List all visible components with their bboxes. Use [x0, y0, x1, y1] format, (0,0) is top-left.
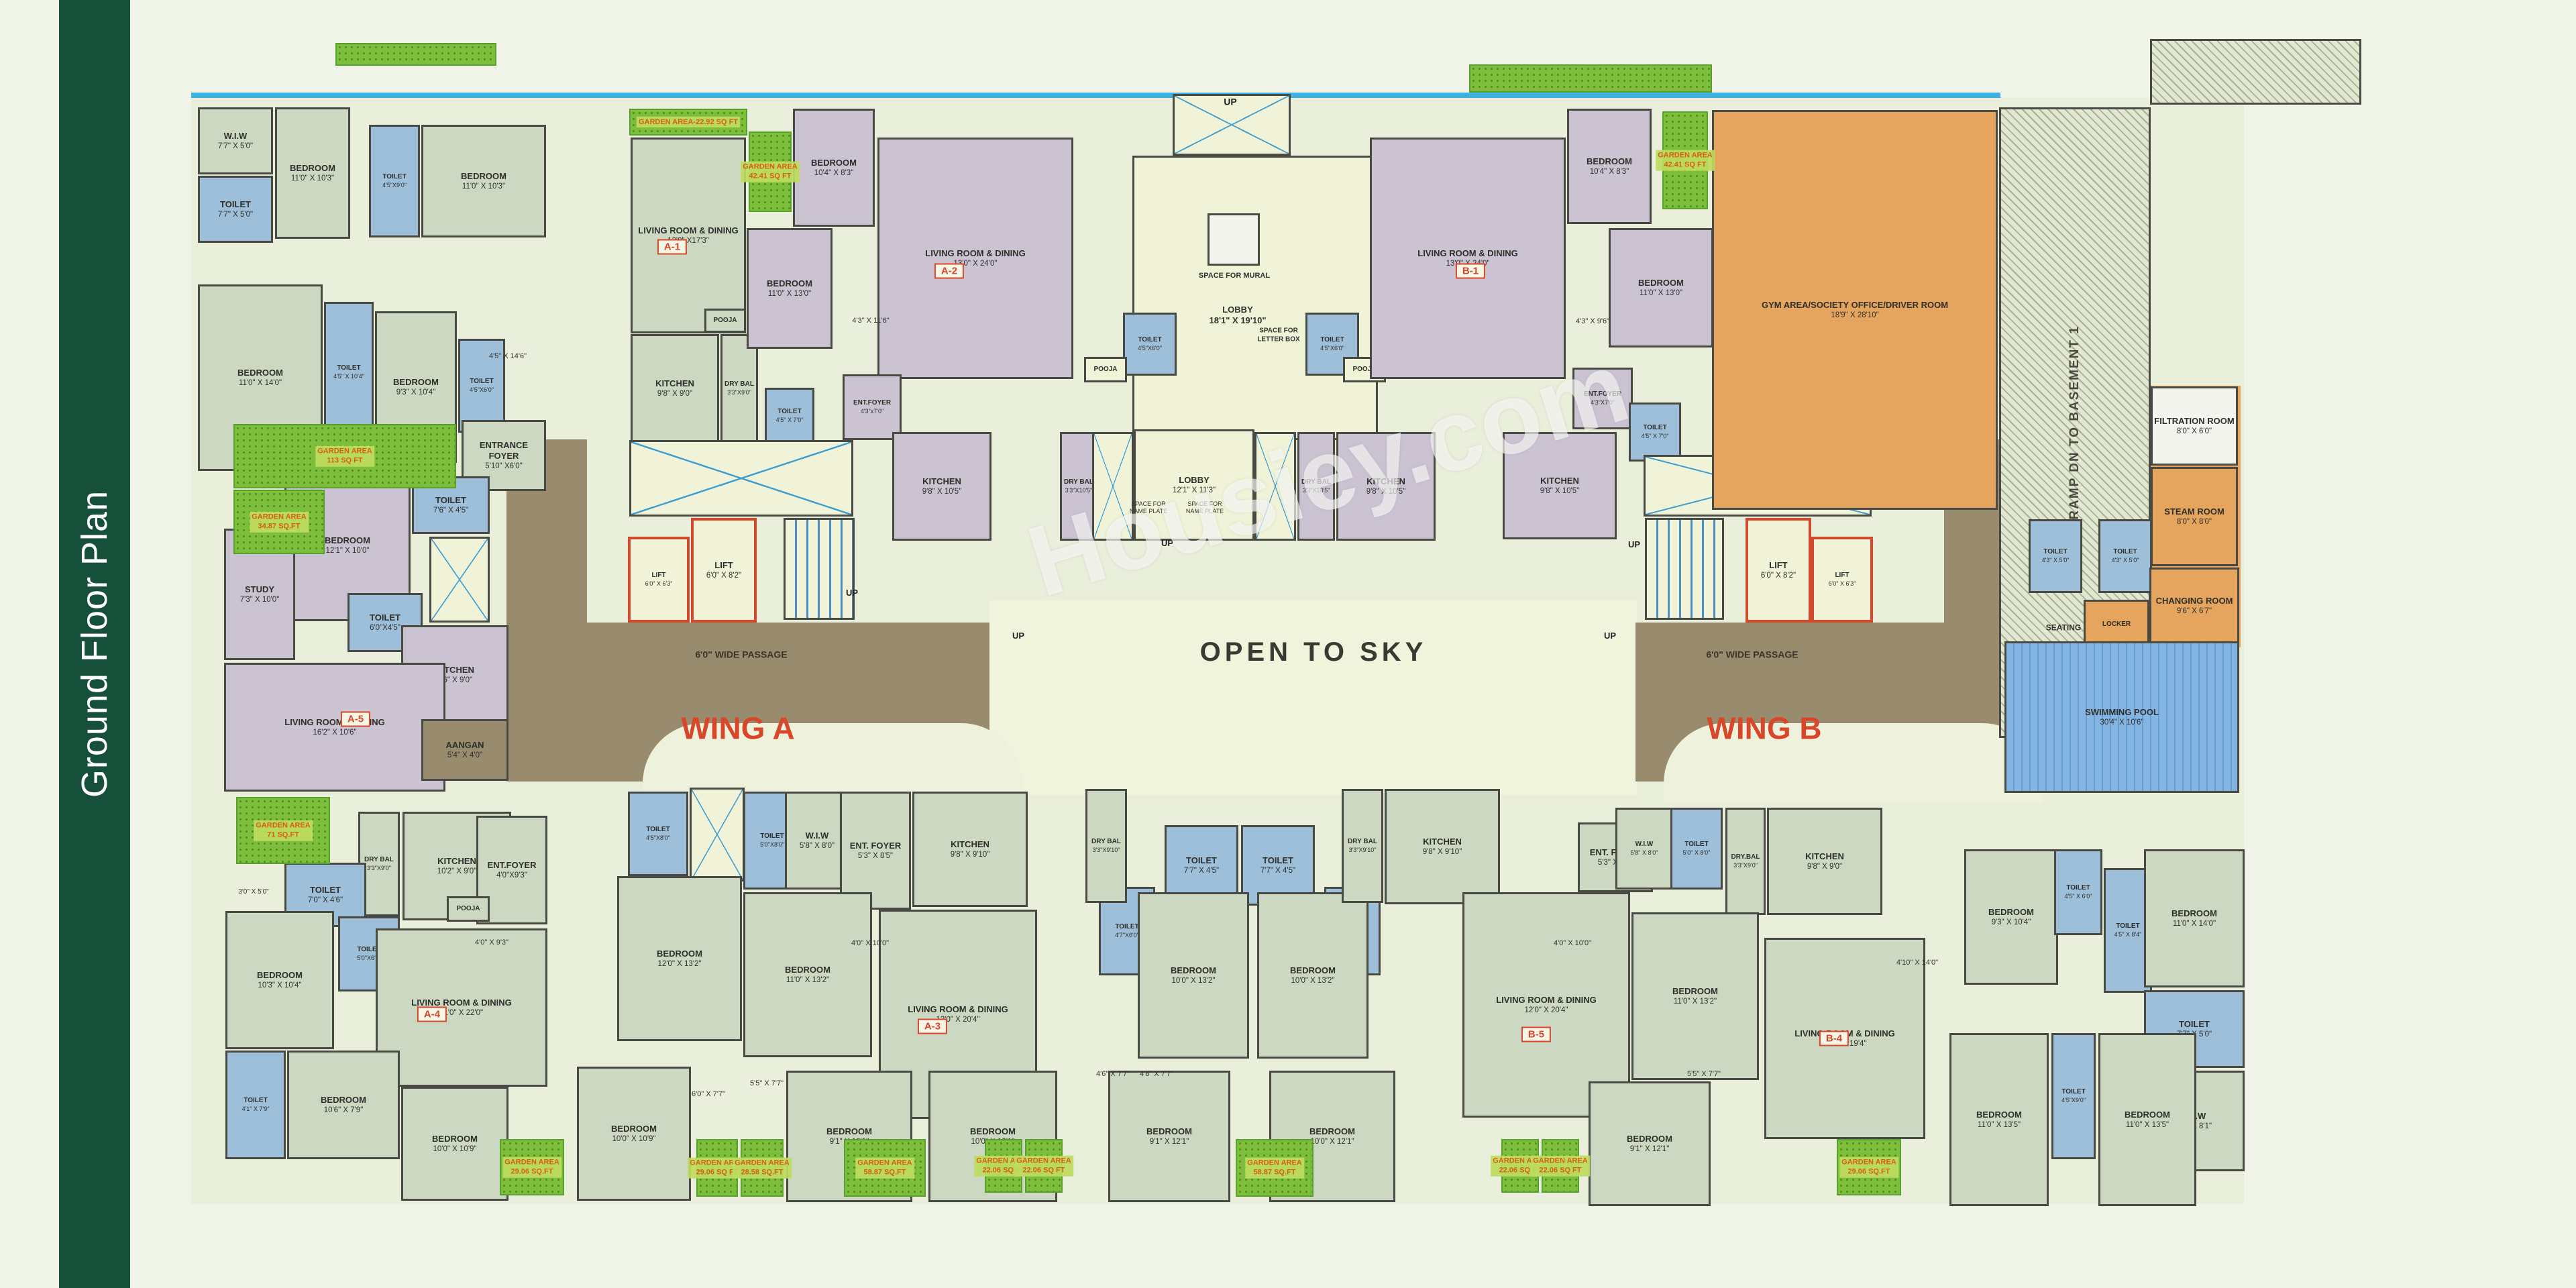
plan-label: UP	[1604, 631, 1616, 641]
room-lift: LIFT6'0" X 8'2"	[1746, 518, 1811, 623]
room-name: BEDROOM	[611, 1124, 657, 1134]
room-dims: 4'5" X 6'0"	[2065, 893, 2092, 900]
room-space	[2150, 39, 2361, 105]
room-name: BEDROOM	[1171, 965, 1216, 976]
room-dims: 4'5"X8'0"	[646, 835, 670, 842]
room-name: STUDY	[245, 584, 274, 595]
room-name: TOILET	[2113, 548, 2137, 557]
room-name: LIVING ROOM & DINING	[1496, 995, 1597, 1006]
unit-tag-a-4: A-4	[417, 1007, 447, 1022]
unit-tag-a-1: A-1	[657, 239, 687, 255]
plan-label: 4'5" X 14'6"	[489, 352, 527, 362]
room-dims: 4'5"X9'0"	[382, 182, 407, 189]
room-living-room-dining: LIVING ROOM & DINING11'0" X 22'0"	[376, 928, 547, 1087]
room-space	[1132, 156, 1378, 440]
unit-tag-b-5: B-5	[1521, 1027, 1551, 1042]
room-toilet: TOILET4'5"X6'0"	[1123, 313, 1177, 376]
room-dims: 6'0" X 8'2"	[1761, 571, 1796, 580]
room-name: AANGAN	[445, 740, 484, 751]
room-name: KITCHEN	[951, 839, 989, 850]
room-name: KITCHEN	[655, 378, 694, 389]
room-name: TOILET	[2043, 548, 2067, 557]
room-living-room-dining: LIVING ROOM & DINING13'0" X17'3"	[631, 138, 746, 333]
room-name: LIVING ROOM & DINING	[908, 1004, 1008, 1015]
room-changing-room: CHANGING ROOM9'6" X 6'7"	[2149, 568, 2239, 644]
room-dry-bal: DRY.BAL3'3"X9'0"	[1725, 808, 1766, 915]
room-toilet: TOILET7'7" X 5'0"	[198, 176, 273, 243]
room-kitchen: KITCHEN9'8" X 10'5"	[1503, 432, 1617, 539]
room-bedroom: BEDROOM10'0" X 10'9"	[401, 1087, 508, 1201]
room-dims: 10'0" X 13'2"	[1172, 976, 1216, 985]
garden-area: GARDEN AREA42.41 SQ FT	[749, 131, 792, 212]
garden-area: GARDEN AREA113 SQ FT	[233, 424, 456, 488]
room-name: FILTRATION ROOM	[2154, 416, 2234, 427]
room-ent-foyer: ENT.FOYER4'3"X7'0"	[1572, 368, 1633, 429]
room-bedroom: BEDROOM9'1" X 12'1"	[1108, 1071, 1230, 1202]
room-dims: 9'6" X 6'7"	[2177, 606, 2212, 616]
garden-area: GARDEN AREA22.06 SQ FT	[1542, 1139, 1579, 1193]
plan-label: SPACE FOR NAME PLATE	[1130, 500, 1167, 516]
room-name: POOJA	[456, 905, 480, 914]
room-pooja: POOJA	[447, 896, 490, 922]
room-bedroom: BEDROOM10'0" X 13'2"	[1257, 892, 1368, 1059]
room-toilet: TOILET4'5" X 6'0"	[2054, 849, 2102, 935]
room-name: BEDROOM	[257, 970, 303, 981]
unit-tag-b-4: B-4	[1819, 1031, 1849, 1046]
room-dims: 9'8" X 10'5"	[922, 487, 962, 496]
room-name: BEDROOM	[1146, 1126, 1192, 1137]
room-pooja: POOJA	[1084, 357, 1127, 382]
room-dims: 12'0" X 20'4"	[1525, 1006, 1568, 1015]
plan-label: 4'6" X 7'7"	[1096, 1070, 1130, 1079]
room-dims: 9'8" X 9'0"	[1807, 862, 1842, 871]
room-name: TOILET	[2061, 1088, 2085, 1097]
garden-label: GARDEN AREA42.41 SQ FT	[741, 162, 800, 182]
room-name: ENT.FOYER	[853, 399, 891, 408]
room-living-room-dining: LIVING ROOM & DINING13'0" X 24'0"	[1370, 138, 1566, 379]
room-dims: 5'0" X 8'0"	[1683, 849, 1711, 857]
room-name: KITCHEN	[437, 856, 476, 867]
room-gym-area-society-office-driver-room: GYM AREA/SOCIETY OFFICE/DRIVER ROOM18'9"…	[1712, 110, 1998, 510]
room-living-room-dining: LIVING ROOM & DINING13'0" X 24'0"	[877, 138, 1073, 379]
garden-label: GARDEN AREA-22.92 SQ FT	[637, 117, 740, 127]
room-name: TOILET	[2066, 884, 2090, 893]
room-dims: 4'3" X 5'0"	[2112, 557, 2139, 564]
room-name: BEDROOM	[785, 965, 830, 975]
room-dims: 5'8" X 8'0"	[800, 841, 835, 851]
room-name: CHANGING ROOM	[2156, 596, 2233, 606]
plan-label: 4'0" X 10'0"	[851, 939, 889, 949]
room-name: TOILET	[370, 612, 400, 623]
plan-label: 4'10" X 14'0"	[1896, 959, 1938, 968]
room-bedroom: BEDROOM11'0" X 13'0"	[747, 228, 833, 349]
room-dims: 9'1" X 12'1"	[1630, 1144, 1670, 1154]
room-dims: 3'3"X10'5"	[1303, 487, 1330, 494]
room-bedroom: BEDROOM11'0" X 13'5"	[2098, 1033, 2196, 1206]
garden-label: GARDEN AREA29.06 SQ.FT	[502, 1157, 561, 1178]
room-name: TOILET	[1643, 424, 1666, 433]
room-name: LIFT	[1769, 560, 1787, 571]
garden-label: GARDEN AREA71 SQ.FT	[254, 820, 313, 841]
room-dims: 18'9" X 28'10"	[1831, 311, 1878, 320]
room-name: BEDROOM	[1587, 156, 1632, 167]
room-name: BEDROOM	[1309, 1126, 1355, 1137]
room-dims: 7'7" X 4'5"	[1184, 866, 1219, 875]
room-name: BEDROOM	[432, 1134, 478, 1144]
room-toilet: TOILET4'5"X9'0"	[2051, 1033, 2096, 1159]
room-lift: LIFT6'0" X 6'3"	[628, 537, 690, 623]
plan-label: 5'5" X 7'7"	[750, 1079, 784, 1089]
room-dims: 11'0" X 10'3"	[462, 182, 505, 191]
plan-label: OPEN TO SKY	[1200, 635, 1428, 669]
room-dims: 6'0" X 8'2"	[706, 571, 741, 580]
room-name: TOILET	[1320, 336, 1344, 345]
room-toilet: TOILET5'0" X 8'0"	[1670, 808, 1723, 890]
room-dims: 10'2" X 9'0"	[437, 867, 477, 876]
room-dims: 7'3" X 10'0"	[240, 595, 280, 604]
unit-tag-a-3: A-3	[918, 1019, 947, 1034]
room-name: BEDROOM	[393, 377, 439, 388]
room-ent-foyer: ENT.FOYER4'3"x7'0"	[843, 374, 902, 440]
room-name: TOILET	[220, 199, 251, 210]
room-name: DRY.BAL	[1731, 853, 1760, 862]
plan-label: 4'0" X 9'3"	[475, 938, 508, 948]
room-bedroom: BEDROOM10'4" X 8'3"	[1567, 109, 1652, 224]
room-name: BEDROOM	[2171, 908, 2217, 919]
room-name: DRY BAL	[1301, 478, 1331, 487]
room-name: KITCHEN	[922, 476, 961, 487]
room-dims: 3'3"X9'10"	[1349, 847, 1377, 854]
room-name: TOILET	[1115, 923, 1138, 932]
room-name: ENTRANCE FOYER	[464, 440, 544, 462]
room-bedroom: BEDROOM11'0" X 10'3"	[275, 107, 350, 239]
zone-bl	[191, 93, 2000, 98]
room-dims: 9'8" X 10'5"	[1540, 486, 1580, 496]
room-name: LIVING ROOM & DINING	[925, 248, 1026, 259]
plan-label: 4'6" X 7'7"	[1140, 1070, 1173, 1079]
room-bedroom: BEDROOM10'3" X 10'4"	[225, 911, 334, 1049]
room-dims: 11'0" X 13'2"	[1674, 997, 1717, 1006]
room-dims: 11'0" X 13'0"	[768, 289, 811, 299]
room-name: BEDROOM	[461, 171, 506, 182]
room-name: BEDROOM	[811, 158, 857, 168]
plan-label: WING B	[1707, 709, 1821, 748]
room-name: TOILET	[777, 408, 801, 417]
room-pooja: POOJA	[704, 309, 746, 333]
plan-label: 4'3" X 11'6"	[852, 317, 889, 326]
room-dims: 11'0" X 14'0"	[239, 378, 282, 388]
room-name: TOILET	[760, 833, 784, 841]
room-name: BEDROOM	[1627, 1134, 1672, 1144]
room-toilet: TOILET4'5" X 10'4"	[324, 302, 374, 443]
garden-area: GARDEN AREA58.87 SQ.FT	[844, 1139, 926, 1197]
room-dims: 4'5"X9'0"	[2061, 1097, 2086, 1104]
room-name: ENT. FOYER	[850, 841, 902, 851]
room-dims: 4'5"X6'0"	[470, 386, 494, 394]
room-space	[1207, 213, 1260, 266]
room-name: POOJA	[713, 317, 737, 325]
room-space	[784, 518, 855, 620]
garden-area: GARDEN AREA-22.92 SQ FT	[629, 109, 747, 136]
room-dims: 12'1" X 10'0"	[326, 546, 370, 555]
room-name: KITCHEN	[1540, 476, 1579, 486]
room-dims: 3'3"X9'0"	[367, 865, 391, 872]
room-name: BEDROOM	[1290, 965, 1336, 976]
room-space	[1092, 432, 1134, 541]
room-dims: 10'6" X 7'9"	[324, 1106, 364, 1115]
garden-label: GARDEN AREA113 SQ FT	[315, 446, 374, 467]
room-name: LIVING ROOM & DINING	[1417, 248, 1518, 259]
plan-label: WING A	[681, 709, 795, 748]
room-name: LOCKER	[2102, 621, 2131, 629]
room-bedroom: BEDROOM11'0" X 13'2"	[1631, 912, 1759, 1080]
room-w-i-w: W.I.W5'8" X 8'0"	[1615, 808, 1673, 890]
room-kitchen: KITCHEN9'8" X 9'0"	[631, 334, 719, 443]
room-lift: LIFT6'0" X 6'3"	[1811, 537, 1873, 623]
room-name: DRY BAL	[1064, 478, 1093, 487]
plan-label: UP	[1224, 96, 1236, 108]
room-name: LIFT	[1835, 572, 1849, 580]
room-steam-room: STEAM ROOM8'0" X 8'0"	[2151, 467, 2238, 566]
unit-tag-a-5: A-5	[341, 712, 370, 727]
room-dims: 8'0" X 8'0"	[2177, 517, 2212, 527]
room-name: KITCHEN	[1423, 837, 1462, 847]
room-dims: 11'0" X 14'0"	[2173, 919, 2216, 928]
garden-area: GARDEN AREA71 SQ.FT	[236, 797, 330, 864]
room-dims: 9'3" X 10'4"	[1992, 918, 2031, 927]
room-dims: 10'0" X 10'9"	[433, 1144, 477, 1154]
room-dims: 5'10" X6'0"	[485, 462, 522, 471]
room-kitchen: KITCHEN9'8" X 10'5"	[892, 432, 991, 541]
plan-label: 5'5" X 7'7"	[1687, 1070, 1721, 1079]
room-name: POOJA	[1093, 366, 1117, 374]
room-name: LIFT	[651, 572, 665, 580]
plan-label: UP	[1628, 539, 1640, 550]
room-name: TOILET	[244, 1097, 267, 1106]
room-dims: 9'1" X 12'1"	[1150, 1137, 1189, 1146]
plan-label: UP	[1161, 538, 1173, 549]
room-name: GYM AREA/SOCIETY OFFICE/DRIVER ROOM	[1762, 300, 1948, 311]
room-kitchen: KITCHEN9'8" X 9'10"	[912, 792, 1028, 907]
plan-label: SEATING	[2046, 623, 2081, 633]
room-name: TOILET	[435, 495, 466, 506]
room-lobby: LOBBY12'1" X 11'3"	[1134, 429, 1254, 541]
room-aangan: AANGAN5'4" X 4'0"	[421, 719, 508, 781]
room-name: TOILET	[470, 378, 493, 386]
garden-area: GARDEN AREA34.87 SQ.FT	[233, 490, 325, 554]
room-name: TOILET	[1186, 855, 1217, 866]
room-bedroom: BEDROOM10'6" X 7'9"	[287, 1051, 400, 1159]
garden-area: GARDEN AREA58.87 SQ.FT	[1236, 1139, 1313, 1197]
room-name: TOILET	[337, 364, 360, 373]
room-name: KITCHEN	[1366, 476, 1405, 487]
room-dims: 4'5" X 8'4"	[2114, 931, 2142, 938]
room-toilet: TOILET4'5"X8'0"	[628, 792, 688, 876]
room-dims: 4'5"X6'0"	[1320, 345, 1344, 352]
room-dims: 11'0" X 13'0"	[1640, 288, 1682, 298]
room-dims: 4'5" X 7'0"	[1642, 433, 1669, 440]
room-dry-bal: DRY BAL3'3"X9'10"	[1085, 789, 1127, 903]
room-name: W.I.W	[224, 131, 248, 142]
plan-label: 3'0" X 5'0"	[238, 888, 268, 897]
room-toilet: TOILET4'5" X 7'0"	[765, 388, 814, 444]
plan-label: 4'3" X 9'6"	[1576, 317, 1609, 327]
room-name: LIFT	[714, 560, 733, 571]
room-dims: 6'0"X4'5"	[370, 623, 400, 633]
room-dims: 3'3"X9'0"	[1733, 862, 1758, 869]
room-name: ENT.FOYER	[488, 860, 537, 871]
garden-area: GARDEN AREA28.58 SQ.FT	[741, 1139, 784, 1197]
room-dims: 3'3"X10'5"	[1065, 487, 1093, 494]
room-name: TOILET	[1684, 841, 1708, 849]
room-name: BEDROOM	[325, 535, 370, 546]
room-dims: 4'3" X 5'0"	[2042, 557, 2070, 564]
room-dims: 4'3"x7'0"	[861, 408, 883, 415]
room-name: BEDROOM	[2125, 1110, 2170, 1120]
page-title: Ground Floor Plan	[74, 490, 115, 798]
plan-label: SPACE FOR NAME PLATE	[1186, 500, 1224, 516]
room-dims: 5'8" X 8'0"	[1631, 849, 1658, 857]
garden-area	[1469, 64, 1712, 93]
room-name: TOILET	[1138, 336, 1161, 345]
room-dims: 10'4" X 8'3"	[814, 168, 854, 178]
plan-label: SPACE FOR LETTER BOX	[1257, 327, 1299, 344]
plan-label: 6'0" WIDE PASSAGE	[1706, 649, 1798, 661]
garden-label: GARDEN AREA22.06 SQ FT	[1531, 1156, 1590, 1177]
plan-label: UP	[1012, 631, 1024, 641]
room-toilet: TOILET4'3" X 5'0"	[2098, 519, 2152, 593]
room-name: W.I.W	[1635, 841, 1654, 849]
room-name: DRY BAL	[364, 856, 394, 865]
room-name: BEDROOM	[321, 1095, 366, 1106]
room-living-room-dining: LIVING ROOM & DINING16'2" X 10'6"	[224, 663, 445, 792]
garden-label: GARDEN AREA58.87 SQ.FT	[1245, 1158, 1304, 1179]
room-name: LOBBY	[1179, 475, 1210, 486]
room-dims: 5'0"X8'0"	[760, 841, 784, 849]
sidebar-title-band: Ground Floor Plan	[59, 0, 130, 1288]
room-filtration-room: FILTRATION ROOM8'0" X 6'0"	[2151, 386, 2238, 466]
room-name: STEAM ROOM	[2164, 506, 2224, 517]
room-dims: 10'0" X 13'2"	[1291, 976, 1335, 985]
room-dims: 4'1" X 7'9"	[242, 1106, 270, 1113]
room-dims: 11'0" X 13'5"	[2126, 1120, 2169, 1130]
room-toilet: TOILET4'3" X 5'0"	[2029, 519, 2082, 593]
room-name: BEDROOM	[1988, 907, 2034, 918]
room-name: BEDROOM	[1638, 278, 1684, 288]
room-name: RAMP DN TO BASEMENT 1	[2067, 325, 2083, 519]
unit-tag-a-2: A-2	[934, 264, 964, 279]
room-dry-bal: DRY BAL3'3"X9'0"	[720, 334, 758, 443]
room-bedroom: BEDROOM9'3" X 10'4"	[1964, 849, 2058, 985]
room-dims: 10'4" X 8'3"	[1590, 167, 1629, 176]
room-name: TOILET	[382, 173, 406, 182]
room-dims: 11'0" X 13'2"	[786, 975, 829, 985]
room-space	[629, 440, 853, 517]
room-name: LIVING ROOM & DINING	[638, 225, 739, 236]
room-dims: 9'8" X 9'10"	[1423, 847, 1462, 857]
room-name: TOILET	[310, 885, 341, 896]
room-bedroom: BEDROOM11'0" X 14'0"	[2144, 849, 2245, 987]
room-name: BEDROOM	[1672, 986, 1718, 997]
room-name: BEDROOM	[290, 163, 335, 174]
plan-label: SPACE FOR MURAL	[1199, 272, 1270, 281]
room-toilet: TOILET4'1" X 7'9"	[225, 1051, 286, 1159]
zone-sky	[989, 600, 1637, 795]
room-dims: 12'1" X 11'3"	[1173, 486, 1216, 495]
room-kitchen: KITCHEN9'8" X 9'10"	[1385, 789, 1500, 904]
room-name: TOILET	[1263, 855, 1293, 866]
room-name: ENT.FOYER	[1584, 390, 1621, 399]
room-toilet: TOILET4'5" X 7'0"	[1629, 402, 1681, 462]
room-space	[690, 788, 745, 881]
room-kitchen: KITCHEN9'8" X 9'0"	[1767, 808, 1882, 915]
plan-label: 4'0" X 10'0"	[1554, 939, 1591, 949]
room-bedroom: BEDROOM11'0" X 10'3"	[421, 125, 546, 237]
unit-tag-b-1: B-1	[1456, 264, 1485, 279]
garden-label: GARDEN AREA58.87 SQ.FT	[855, 1158, 914, 1179]
garden-label: GARDEN AREA29.06 SQ.FT	[1839, 1157, 1898, 1178]
garden-area: GARDEN AREA29.06 SQ.FT	[500, 1139, 564, 1195]
room-name: KITCHEN	[1805, 851, 1844, 862]
room-dims: 10'0" X 12'1"	[1311, 1137, 1354, 1146]
room-name: BEDROOM	[237, 368, 283, 378]
room-dims: 7'7" X 5'0"	[218, 210, 253, 219]
room-name: DRY BAL	[1091, 838, 1121, 847]
room-dims: 4'5" X 7'0"	[776, 417, 804, 424]
room-dims: 10'0" X 10'9"	[612, 1134, 656, 1144]
garden-label: GARDEN AREA22.06 SQ FT	[1014, 1156, 1073, 1177]
plan-label: 6'0" WIDE PASSAGE	[695, 649, 787, 661]
room-dims: 6'0" X 6'3"	[645, 580, 673, 588]
room-name: TOILET	[646, 826, 669, 835]
room-name: DRY BAL	[1348, 838, 1377, 847]
garden-label: GARDEN AREA42.41 SQ FT	[1656, 150, 1715, 171]
room-dims: 9'3" X 10'4"	[396, 388, 436, 397]
room-dims: 9'8" X 9'0"	[657, 389, 692, 398]
room-dims: 9'8" X 9'10"	[951, 850, 990, 859]
room-dims: 16'2" X 10'6"	[313, 728, 357, 737]
room-name: BEDROOM	[970, 1126, 1016, 1137]
room-dims: 5'4" X 4'0"	[447, 751, 482, 760]
room-name: SWIMMING POOL	[2085, 707, 2159, 718]
room-kitchen: KITCHEN9'8" X 10'5"	[1336, 432, 1436, 541]
room-dims: 11'0" X 13'5"	[1978, 1120, 2021, 1130]
room-space	[429, 537, 490, 623]
room-dims: 4'7"X6'0"	[1115, 932, 1139, 939]
garden-label: GARDEN AREA28.58 SQ.FT	[733, 1158, 792, 1179]
room-lift: LIFT6'0" X 8'2"	[691, 518, 757, 623]
garden-area: GARDEN AREA22.06 SQ FT	[1025, 1139, 1063, 1193]
room-w-i-w: W.I.W7'7" X 5'0"	[198, 107, 273, 174]
room-swimming-pool: SWIMMING POOL30'4" X 10'6"	[2004, 641, 2239, 793]
room-bedroom: BEDROOM10'0" X 13'2"	[1138, 892, 1249, 1059]
floor-plan-canvas: Ground Floor Plan W.I.W7'7" X 5'0"TOILET…	[0, 0, 2576, 1288]
plan-label: UP	[846, 588, 858, 598]
room-name: TOILET	[2116, 922, 2139, 931]
room-dims: 11'0" X 10'3"	[291, 174, 334, 183]
room-name: DRY BAL	[724, 380, 754, 389]
room-dims: 3'3"X9'0"	[727, 389, 751, 396]
room-bedroom: BEDROOM11'0" X 13'5"	[1949, 1033, 2049, 1206]
plan-label: 6'0" X 7'7"	[692, 1090, 725, 1099]
room-dims: 3'3"X9'10"	[1093, 847, 1120, 854]
room-name: TOILET	[2179, 1019, 2210, 1030]
room-dims: 7'7" X 4'5"	[1260, 866, 1295, 875]
garden-area: GARDEN AREA29.06 SQ.FT	[1837, 1139, 1901, 1195]
room-dims: 4'0"X9'3"	[496, 871, 527, 880]
room-bedroom: BEDROOM9'1" X 12'1"	[1589, 1081, 1711, 1206]
room-dims: 4'3"X7'0"	[1591, 399, 1615, 407]
